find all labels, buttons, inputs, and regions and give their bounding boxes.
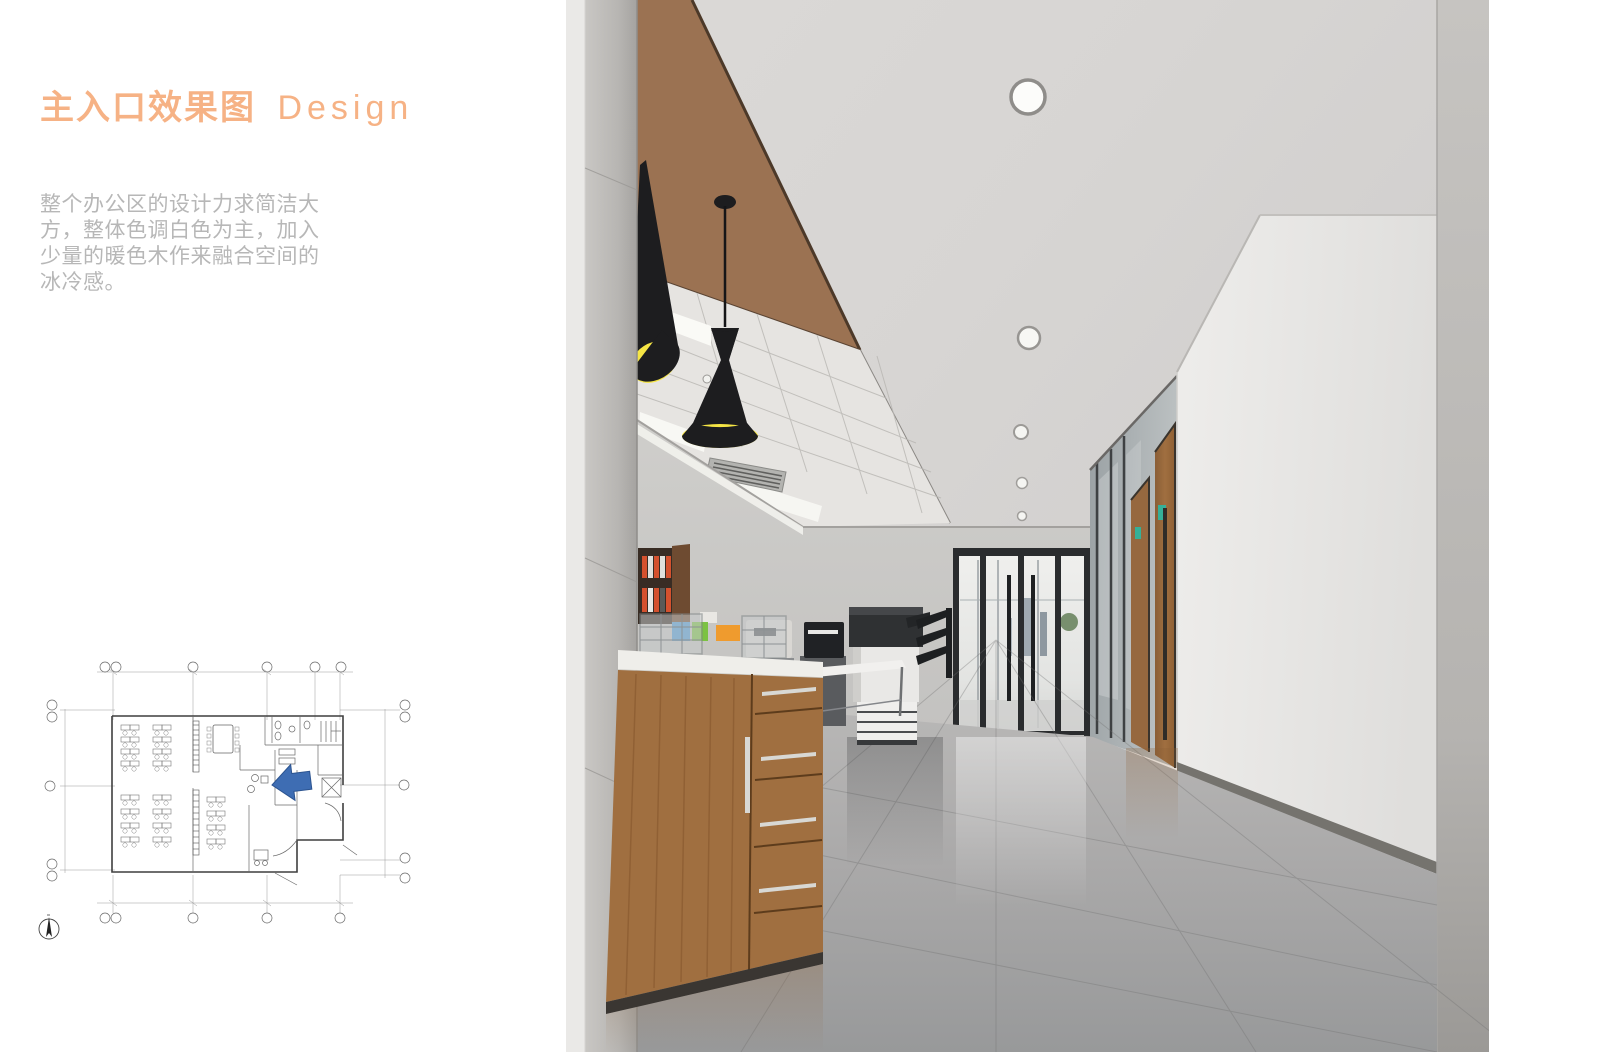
plan-meeting-table: [207, 725, 239, 753]
plan-outer-walls: [112, 716, 343, 872]
wood-door: [1155, 424, 1175, 768]
city-building: [1040, 612, 1047, 656]
tile-downlight: [703, 375, 711, 383]
right-white-wall: [1177, 215, 1437, 874]
wood-door: [1131, 478, 1149, 752]
plan-workstations: [121, 725, 225, 849]
floor-plan-svg: [35, 645, 415, 950]
orange-box: [716, 625, 740, 641]
entrance-arrow-icon: [270, 762, 313, 802]
north-arrow-icon: [39, 915, 59, 939]
copier-drawers: [857, 702, 917, 745]
page-title: 主入口效果图 Design: [40, 80, 413, 129]
right-near-wall-edge: [1437, 0, 1489, 1052]
plan-grid-bubbles: [45, 662, 410, 923]
floor-reflection: [847, 737, 943, 867]
floor-plan-thumbnail: [35, 645, 415, 950]
slide-canvas: 主入口效果图 Design 整个办公区的设计力求简洁大 方，整体色调白色为主，加…: [0, 0, 1600, 1052]
exit-sign: [1135, 527, 1141, 539]
door-handle: [745, 737, 750, 813]
plan-fixtures: [248, 721, 311, 866]
plan-interior-walls: [193, 716, 357, 885]
plan-glass-partition-hatch: [193, 721, 199, 855]
rendering-image: [566, 0, 1489, 1052]
page-title-zh: 主入口效果图: [40, 89, 256, 127]
floor-reflection: [956, 737, 1086, 907]
wood-cabinet: [606, 650, 823, 1052]
plan-grid-lines: [60, 669, 400, 913]
floor-reflection: [1126, 748, 1178, 838]
description-text: 整个办公区的设计力求简洁大 方，整体色调白色为主，加入 少量的暖色木作来融合空间…: [40, 192, 340, 296]
cabinet-front: [606, 670, 823, 1002]
plan-stairs: [321, 721, 341, 742]
page-title-en: Design: [277, 89, 413, 127]
door-handle: [1163, 508, 1167, 740]
door-handle: [1031, 575, 1035, 701]
plant: [1060, 613, 1078, 631]
rendering-svg: [566, 0, 1489, 1052]
entrance-glass-doors: [953, 548, 1090, 737]
door-handle: [1007, 575, 1011, 701]
binder-bookcase: [638, 544, 690, 624]
